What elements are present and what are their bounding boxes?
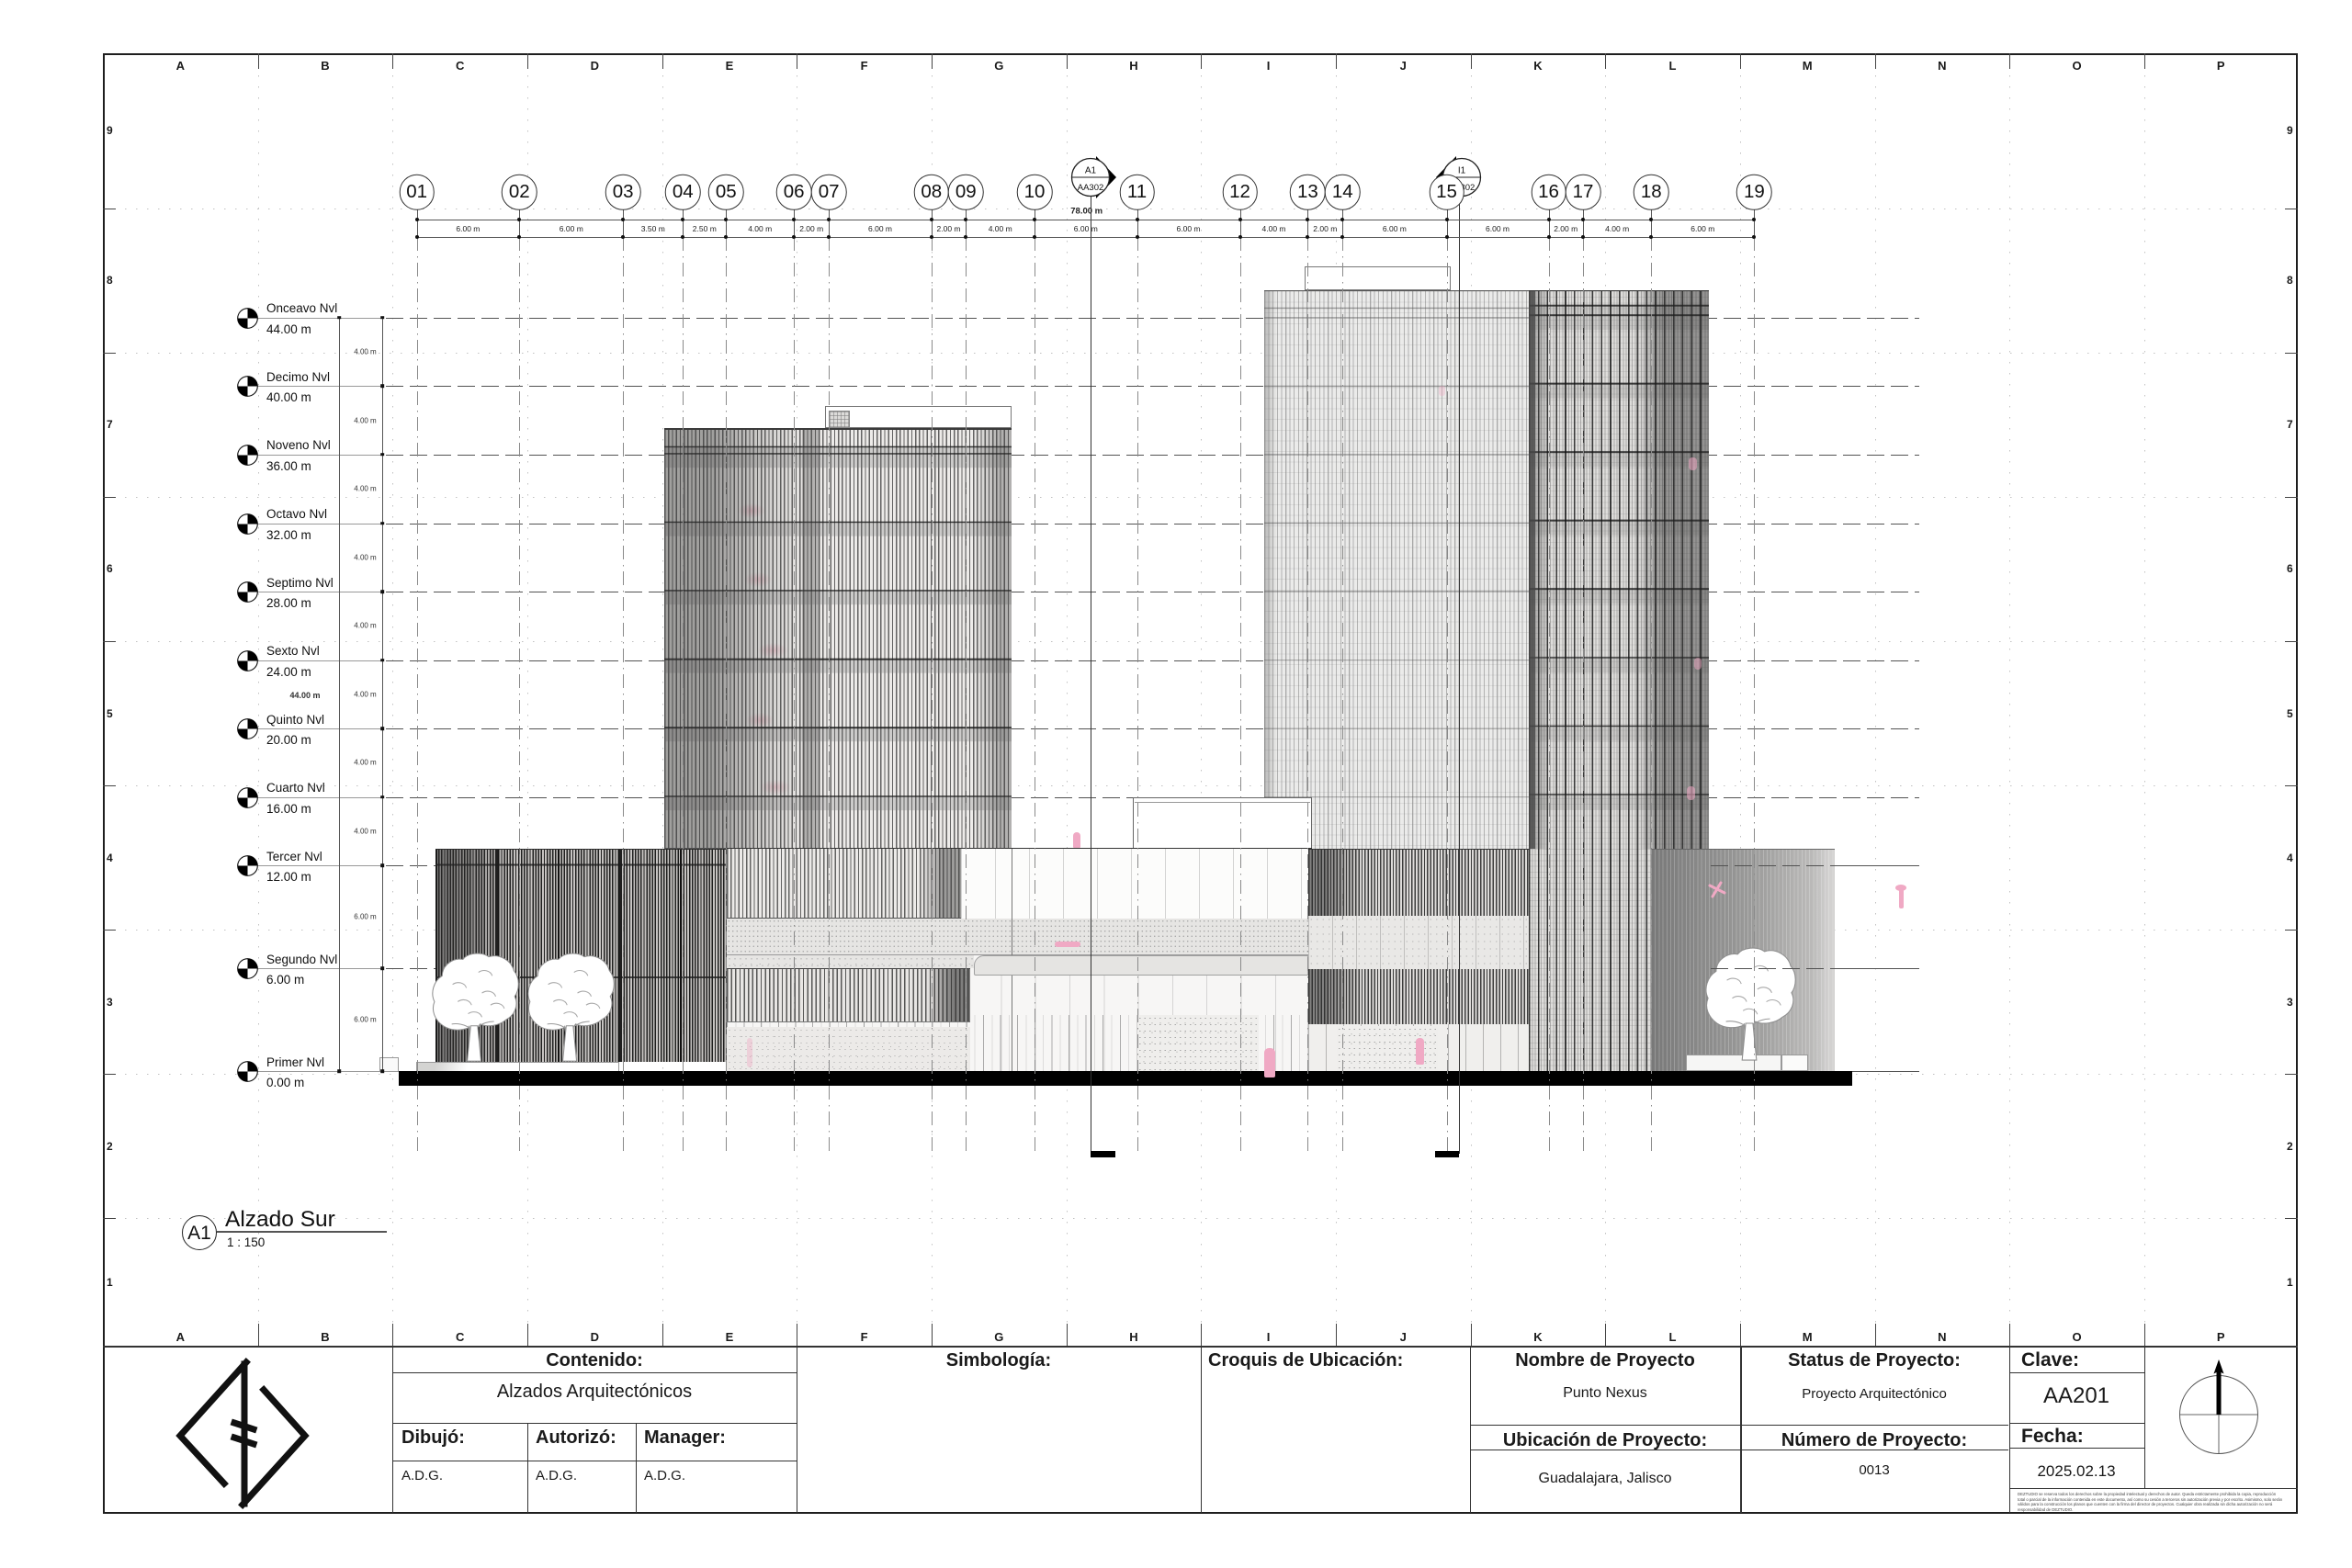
svg-text:I1: I1 [1458, 166, 1466, 176]
svg-text:A1: A1 [1085, 166, 1097, 176]
svg-text:AA302: AA302 [1078, 183, 1104, 193]
